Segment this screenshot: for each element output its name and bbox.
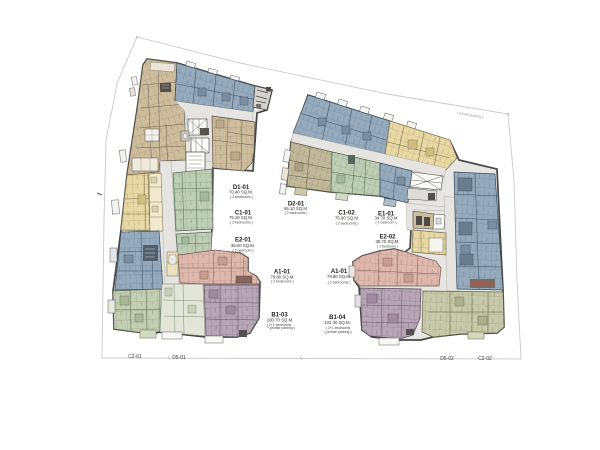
svg-text:75.10 SQ.M.: 75.10 SQ.M. <box>229 215 253 220</box>
svg-text:( private parking ): ( private parking ) <box>324 330 351 334</box>
svg-text:( 1 bedroom ): ( 1 bedroom ) <box>377 244 398 248</box>
svg-text:( 2 bedrooms ): ( 2 bedrooms ) <box>336 221 359 225</box>
svg-text:75.90 SQ.M: 75.90 SQ.M <box>335 215 358 220</box>
svg-text:36.00 SQ.M.: 36.00 SQ.M. <box>231 243 255 248</box>
svg-text:+ private parking ): + private parking ) <box>267 326 295 330</box>
svg-text:( 2 bedrooms ): ( 2 bedrooms ) <box>285 211 308 215</box>
svg-text:( 2 bedrooms ): ( 2 bedrooms ) <box>230 195 253 199</box>
svg-text:( 2 bedrooms ): ( 2 bedrooms ) <box>271 280 294 284</box>
svg-text:36.70 SQ.M.: 36.70 SQ.M. <box>375 239 399 244</box>
svg-text:79.80 SQ.M.: 79.80 SQ.M. <box>327 274 351 279</box>
svg-text:( 1 bedroom ): ( 1 bedroom ) <box>375 221 396 225</box>
svg-text:103.30 SQ.M.: 103.30 SQ.M. <box>324 320 351 325</box>
svg-text:( 1 bedroom ): ( 1 bedroom ) <box>232 249 253 253</box>
svg-text:D5-01: D5-01 <box>172 355 186 361</box>
svg-text:100.70 SQ.M.: 100.70 SQ.M. <box>267 317 294 322</box>
svg-text:C2-01: C2-01 <box>128 354 142 360</box>
svg-text:( 2 bedrooms ): ( 2 bedrooms ) <box>328 280 351 284</box>
svg-text:C2-02: C2-02 <box>478 356 492 362</box>
svg-text:D5-02: D5-02 <box>440 356 454 362</box>
svg-text:( 2 bedrooms ): ( 2 bedrooms ) <box>230 221 253 225</box>
